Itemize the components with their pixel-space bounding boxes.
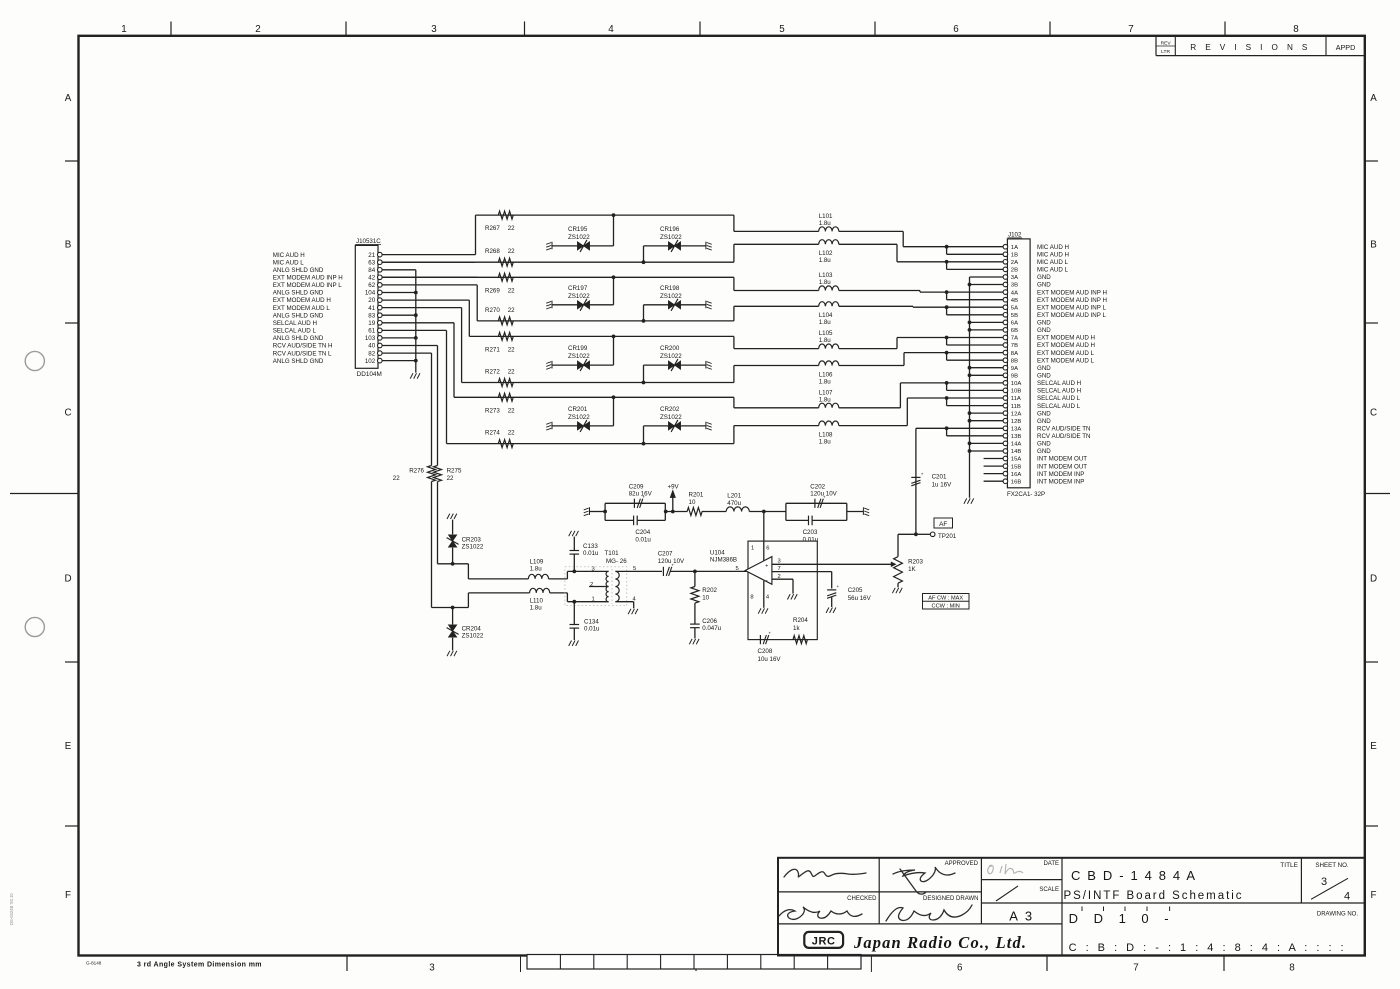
svg-text:GND: GND [1037, 320, 1051, 327]
svg-text:A 3: A 3 [1009, 908, 1034, 923]
svg-text:DESIGNED DRAWN: DESIGNED DRAWN [923, 896, 978, 902]
svg-text:CR204: CR204 [462, 625, 482, 632]
svg-text:7A: 7A [1011, 336, 1018, 342]
svg-text:8: 8 [1289, 963, 1295, 974]
svg-text:L109: L109 [530, 558, 544, 565]
svg-text:2: 2 [255, 24, 260, 35]
svg-text:56u 16V: 56u 16V [848, 595, 872, 602]
svg-text:7B: 7B [1011, 343, 1018, 349]
svg-text:22: 22 [508, 407, 515, 414]
svg-text:ANLG SHLD GND: ANLG SHLD GND [273, 312, 324, 319]
svg-text:5B: 5B [1011, 313, 1018, 319]
svg-text:GND: GND [1037, 365, 1051, 372]
svg-text:R271: R271 [485, 346, 500, 353]
svg-text:R201: R201 [689, 492, 704, 499]
svg-text:L105: L105 [819, 330, 833, 337]
svg-text:61: 61 [368, 328, 375, 335]
svg-text:RCV AUD/SIDE TN L: RCV AUD/SIDE TN L [273, 350, 332, 357]
svg-text:ZS1022: ZS1022 [568, 293, 590, 300]
svg-text:FX2CA1- 32P: FX2CA1- 32P [1007, 491, 1045, 498]
svg-text:CR195: CR195 [568, 226, 588, 233]
svg-text:7: 7 [1128, 24, 1133, 35]
svg-text:RCV AUD/SIDE TN: RCV AUD/SIDE TN [1037, 433, 1091, 440]
svg-text:L102: L102 [819, 250, 833, 257]
svg-text:AF: AF [939, 521, 947, 528]
svg-text:C207: C207 [658, 551, 673, 558]
svg-text:16A: 16A [1011, 472, 1022, 478]
svg-text:DD104M: DD104M [357, 371, 382, 378]
svg-text:ANLG SHLD GND: ANLG SHLD GND [273, 290, 324, 297]
svg-text:C201: C201 [932, 473, 947, 480]
svg-text:14A: 14A [1011, 442, 1022, 448]
svg-text:PS/INTF Board Schematic: PS/INTF Board Schematic [1064, 890, 1242, 902]
svg-text:C205: C205 [848, 587, 863, 594]
svg-text:ZS1022: ZS1022 [462, 543, 484, 550]
svg-text:EXT MODEM AUD H: EXT MODEM AUD H [273, 297, 331, 304]
svg-text:+: + [765, 563, 768, 569]
svg-text:GND: GND [1037, 327, 1051, 334]
svg-text:GND: GND [1037, 448, 1051, 455]
svg-text:12B: 12B [1011, 419, 1022, 425]
svg-text:R274: R274 [485, 430, 500, 437]
svg-text:10: 10 [689, 499, 696, 506]
svg-text:C B D - 1 4 8 4 A: C B D - 1 4 8 4 A [1071, 868, 1199, 883]
svg-text:GND: GND [1037, 373, 1051, 380]
svg-text:L107: L107 [819, 389, 833, 396]
svg-text:C: C [1370, 408, 1377, 419]
svg-text:C202: C202 [810, 483, 825, 490]
svg-text:EXT MODEM AUD INP H: EXT MODEM AUD INP H [1037, 289, 1107, 296]
svg-text:3: 3 [429, 963, 435, 974]
svg-text:82u 16V: 82u 16V [629, 490, 653, 497]
svg-text:ZS1022: ZS1022 [462, 632, 484, 639]
svg-text:SELCAL AUD L: SELCAL AUD L [273, 328, 317, 335]
svg-text:CR202: CR202 [660, 406, 680, 413]
svg-text:EXT MODEM AUD L: EXT MODEM AUD L [1037, 350, 1095, 357]
svg-text:C: C [64, 408, 71, 419]
svg-text:MIC AUD L: MIC AUD L [273, 259, 305, 266]
svg-text:L104: L104 [819, 312, 833, 319]
svg-text:6B: 6B [1011, 328, 1018, 334]
svg-text:9A: 9A [1011, 366, 1018, 372]
svg-text:B: B [65, 240, 72, 251]
svg-text:EXT MODEM AUD L: EXT MODEM AUD L [1037, 357, 1095, 364]
svg-text:103: 103 [365, 335, 376, 342]
svg-text:8B: 8B [1011, 358, 1018, 364]
svg-text:MIC AUD L: MIC AUD L [1037, 259, 1069, 266]
svg-text:B: B [1370, 240, 1377, 251]
svg-text:EXT MODEM AUD L: EXT MODEM AUD L [273, 305, 331, 312]
svg-text:6: 6 [766, 546, 769, 552]
svg-text:8: 8 [1293, 24, 1299, 35]
svg-text:R E V I S I O N S: R E V I S I O N S [1190, 43, 1311, 52]
svg-text:DS-0324B '92.10: DS-0324B '92.10 [9, 893, 14, 925]
svg-text:7: 7 [1133, 963, 1138, 974]
svg-text:11B: 11B [1011, 404, 1021, 410]
svg-text:3B: 3B [1011, 283, 1018, 289]
svg-text:SELCAL AUD L: SELCAL AUD L [1037, 403, 1081, 410]
svg-text:APPROVED: APPROVED [945, 861, 979, 867]
svg-text:MIC AUD H: MIC AUD H [273, 252, 305, 259]
svg-text:ZS1022: ZS1022 [660, 234, 682, 241]
svg-text:120u 10V: 120u 10V [658, 558, 685, 565]
svg-text:40: 40 [368, 343, 375, 350]
svg-text:20: 20 [368, 297, 375, 304]
svg-text:R272: R272 [485, 369, 500, 376]
svg-text:2A: 2A [1011, 260, 1018, 266]
svg-text:EXT MODEM AUD H: EXT MODEM AUD H [1037, 342, 1095, 349]
svg-text:7: 7 [778, 566, 781, 572]
svg-text:0.01u: 0.01u [584, 625, 600, 632]
svg-text:2: 2 [778, 574, 781, 580]
svg-text:9B: 9B [1011, 374, 1018, 380]
svg-text:0.047u: 0.047u [702, 625, 721, 632]
svg-text:F: F [1371, 890, 1377, 901]
svg-text:5A: 5A [1011, 305, 1018, 311]
svg-text:R270: R270 [485, 307, 500, 314]
svg-text:R268: R268 [485, 248, 500, 255]
svg-text:84: 84 [368, 267, 375, 274]
svg-text:CR198: CR198 [660, 285, 680, 292]
svg-text:C204: C204 [635, 529, 650, 536]
svg-text:EXT MODEM AUD INP H: EXT MODEM AUD INP H [273, 275, 343, 282]
svg-text:22: 22 [508, 287, 515, 294]
svg-text:SELCAL AUD H: SELCAL AUD H [1037, 380, 1081, 387]
svg-text:4A: 4A [1011, 290, 1018, 296]
svg-text:1: 1 [592, 596, 595, 602]
svg-text:E: E [65, 741, 72, 752]
svg-text:Japan Radio Co., Ltd.: Japan Radio Co., Ltd. [853, 933, 1026, 952]
svg-text:ANLG SHLD GND: ANLG SHLD GND [273, 335, 324, 342]
svg-text:3A: 3A [1011, 275, 1018, 281]
svg-text:C134: C134 [584, 618, 599, 625]
svg-text:120u 10V: 120u 10V [810, 490, 837, 497]
svg-text:LTR: LTR [1161, 49, 1170, 55]
svg-text:1.8u: 1.8u [819, 319, 832, 326]
svg-text:ZS1022: ZS1022 [660, 353, 682, 360]
svg-text:T101: T101 [605, 550, 620, 557]
svg-text:E: E [1370, 741, 1377, 752]
svg-text:3 rd Angle System Dimension m: 3 rd Angle System Dimension mm [137, 962, 262, 969]
svg-text:104: 104 [365, 290, 376, 297]
svg-text:REV: REV [1161, 40, 1172, 46]
svg-text:1.8u: 1.8u [530, 565, 543, 572]
svg-text:-: - [766, 577, 768, 583]
svg-text:R204: R204 [793, 617, 808, 624]
svg-text:ANLG SHLD GND: ANLG SHLD GND [273, 267, 324, 274]
svg-text:L101: L101 [819, 213, 833, 220]
svg-text:1K: 1K [908, 566, 916, 573]
svg-text:CR197: CR197 [568, 285, 588, 292]
svg-text:+9V: +9V [668, 484, 680, 491]
svg-text:INT MODEM OUT: INT MODEM OUT [1037, 456, 1087, 463]
svg-text:3: 3 [778, 558, 781, 564]
svg-text:R202: R202 [702, 587, 717, 594]
svg-text:EXT MODEM AUD H: EXT MODEM AUD H [1037, 335, 1095, 342]
svg-text:4B: 4B [1011, 298, 1018, 304]
svg-text:EXT MODEM AUD INP H: EXT MODEM AUD INP H [1037, 297, 1107, 304]
svg-text:+: + [921, 472, 924, 477]
svg-text:1B: 1B [1011, 253, 1018, 259]
svg-text:ZS1022: ZS1022 [568, 234, 590, 241]
svg-text:63: 63 [368, 259, 375, 266]
svg-text:INT MODEM OUT: INT MODEM OUT [1037, 463, 1087, 470]
svg-text:RCV AUD/SIDE TN: RCV AUD/SIDE TN [1037, 426, 1091, 433]
svg-text:ZS1022: ZS1022 [660, 293, 682, 300]
svg-text:AF CW : MAX: AF CW : MAX [928, 596, 963, 602]
svg-text:MIC AUD H: MIC AUD H [1037, 244, 1069, 251]
svg-text:CR199: CR199 [568, 345, 588, 352]
svg-text:22: 22 [447, 475, 454, 482]
svg-text:3: 3 [1321, 876, 1327, 888]
svg-text:CR201: CR201 [568, 406, 588, 413]
svg-text:R273: R273 [485, 407, 500, 414]
svg-text:ZS1022: ZS1022 [568, 353, 590, 360]
svg-text:+: + [768, 631, 771, 636]
svg-text:C208: C208 [758, 648, 773, 655]
svg-text:EXT MODEM AUD INP L: EXT MODEM AUD INP L [1037, 312, 1106, 319]
svg-text:MIC AUD L: MIC AUD L [1037, 267, 1069, 274]
svg-text:CCW : MIN: CCW : MIN [932, 603, 960, 609]
svg-text:19: 19 [368, 320, 375, 327]
svg-text:JRC: JRC [812, 936, 836, 948]
svg-text:22: 22 [393, 475, 400, 482]
svg-text:1k: 1k [793, 625, 800, 632]
svg-text:42: 42 [368, 275, 375, 282]
svg-text:41: 41 [368, 305, 375, 312]
svg-text:MG- 26: MG- 26 [606, 558, 627, 565]
svg-text:ZS1022: ZS1022 [660, 414, 682, 421]
svg-text:D: D [64, 574, 71, 585]
svg-text:L201: L201 [727, 492, 741, 499]
svg-text:D: D [1370, 574, 1377, 585]
svg-text:22: 22 [508, 346, 515, 353]
svg-text:SCALE: SCALE [1039, 887, 1059, 893]
svg-text:EXT MODEM AUD INP L: EXT MODEM AUD INP L [1037, 304, 1106, 311]
svg-text:DRAWING NO.: DRAWING NO. [1317, 911, 1358, 917]
svg-text:U104: U104 [710, 549, 725, 556]
svg-text:A: A [1370, 93, 1377, 104]
svg-text:GND: GND [1037, 410, 1051, 417]
svg-text:1.8u: 1.8u [819, 378, 832, 385]
svg-text:TITLE: TITLE [1280, 862, 1298, 869]
svg-text:RCV AUD/SIDE TN H: RCV AUD/SIDE TN H [273, 343, 333, 350]
svg-text:ZS1022: ZS1022 [568, 414, 590, 421]
svg-text:F: F [65, 890, 71, 901]
svg-text:102: 102 [365, 358, 376, 365]
svg-text:R276: R276 [409, 468, 424, 475]
svg-text:CR203: CR203 [462, 536, 482, 543]
svg-text:L110: L110 [530, 598, 544, 605]
svg-text:A: A [65, 93, 72, 104]
svg-text:16B: 16B [1011, 479, 1022, 485]
svg-text:GND: GND [1037, 418, 1051, 425]
svg-text:8: 8 [750, 595, 753, 601]
svg-text:11A: 11A [1011, 396, 1021, 402]
svg-text:8A: 8A [1011, 351, 1018, 357]
svg-text:SELCAL AUD H: SELCAL AUD H [273, 320, 317, 327]
svg-text:0.01u: 0.01u [583, 550, 599, 557]
svg-text:6: 6 [953, 24, 959, 35]
svg-text:10A: 10A [1011, 381, 1022, 387]
svg-text:12A: 12A [1011, 411, 1022, 417]
svg-text:DATE: DATE [1043, 861, 1059, 867]
svg-text:L106: L106 [819, 371, 833, 378]
svg-text:C203: C203 [803, 529, 818, 536]
svg-text:62: 62 [368, 282, 375, 289]
svg-text:1.8u: 1.8u [819, 220, 832, 227]
svg-text:15B: 15B [1011, 464, 1022, 470]
svg-text:13B: 13B [1011, 434, 1022, 440]
svg-text:13A: 13A [1011, 427, 1022, 433]
svg-text:MIC AUD H: MIC AUD H [1037, 252, 1069, 259]
svg-text:22: 22 [508, 248, 515, 255]
svg-text:GND: GND [1037, 282, 1051, 289]
svg-text:1.8u: 1.8u [819, 438, 832, 445]
svg-text:1A: 1A [1011, 245, 1018, 251]
svg-text:22: 22 [508, 307, 515, 314]
svg-text:21: 21 [368, 252, 375, 259]
svg-text:1.8u: 1.8u [819, 279, 832, 286]
svg-text:R275: R275 [447, 468, 462, 475]
svg-text:C206: C206 [702, 618, 717, 625]
svg-text:TP201: TP201 [938, 533, 957, 540]
svg-text:GND: GND [1037, 274, 1051, 281]
svg-text:0.01u: 0.01u [635, 536, 651, 543]
svg-text:NJM386B: NJM386B [710, 557, 737, 564]
svg-text:14B: 14B [1011, 449, 1022, 455]
svg-text:22: 22 [508, 430, 515, 437]
svg-text:INT MODEM INP: INT MODEM INP [1037, 471, 1084, 478]
svg-text:6: 6 [957, 963, 963, 974]
svg-text:G-8148: G-8148 [86, 961, 102, 966]
svg-text:83: 83 [368, 312, 375, 319]
svg-text:1: 1 [751, 546, 754, 552]
svg-text:10u 16V: 10u 16V [758, 656, 782, 663]
svg-text:CR200: CR200 [660, 345, 680, 352]
svg-text:1.8u: 1.8u [819, 257, 832, 264]
svg-text:10: 10 [702, 594, 709, 601]
svg-text:C133: C133 [583, 543, 598, 550]
svg-text:1.8u: 1.8u [819, 337, 832, 344]
svg-text:CR196: CR196 [660, 226, 680, 233]
svg-text:C209: C209 [629, 483, 644, 490]
svg-text:L108: L108 [819, 431, 833, 438]
svg-text:22: 22 [508, 369, 515, 376]
svg-text:1: 1 [121, 24, 126, 35]
svg-text:5: 5 [779, 24, 785, 35]
svg-text:3: 3 [592, 566, 595, 572]
svg-text:5: 5 [736, 566, 739, 572]
svg-text:3: 3 [431, 24, 437, 35]
svg-text:SELCAL AUD H: SELCAL AUD H [1037, 388, 1081, 395]
svg-text:APPD: APPD [1336, 43, 1356, 52]
svg-text:GND: GND [1037, 441, 1051, 448]
svg-text:1.8u: 1.8u [530, 605, 543, 612]
svg-text:6A: 6A [1011, 321, 1018, 327]
svg-text:R269: R269 [485, 287, 500, 294]
svg-text:2B: 2B [1011, 268, 1018, 274]
svg-text:82: 82 [368, 350, 375, 357]
svg-text:1.8u: 1.8u [819, 396, 832, 403]
svg-text:EXT MODEM AUD INP L: EXT MODEM AUD INP L [273, 282, 342, 289]
svg-text:1u 16V: 1u 16V [932, 481, 952, 488]
svg-text:4: 4 [608, 24, 614, 35]
svg-text:4: 4 [1344, 891, 1350, 903]
svg-text:10B: 10B [1011, 389, 1022, 395]
svg-text:INT MODEM INP: INT MODEM INP [1037, 478, 1084, 485]
svg-text:ANLG SHLD GND: ANLG SHLD GND [273, 358, 324, 365]
svg-text:+: + [837, 584, 840, 589]
svg-text:0.01u: 0.01u [803, 536, 819, 543]
svg-text:15A: 15A [1011, 457, 1022, 463]
svg-text:22: 22 [508, 225, 515, 232]
svg-text:SHEET NO.: SHEET NO. [1315, 862, 1349, 869]
svg-text:R203: R203 [908, 558, 923, 565]
svg-text:SELCAL AUD L: SELCAL AUD L [1037, 395, 1081, 402]
svg-text:L103: L103 [819, 272, 833, 279]
svg-text:CHECKED: CHECKED [847, 896, 877, 902]
svg-text:R267: R267 [485, 225, 500, 232]
svg-text:470u: 470u [727, 500, 741, 507]
